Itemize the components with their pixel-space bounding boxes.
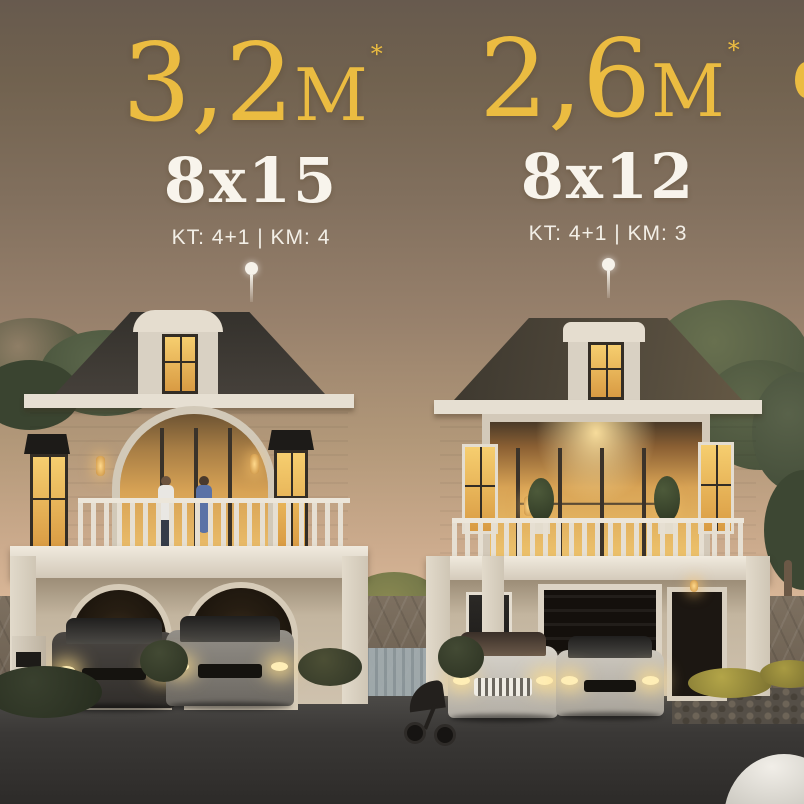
dormer-window: [588, 342, 624, 400]
awning-icon: [24, 434, 70, 454]
left-wing-window: [30, 454, 68, 552]
listing-right: 2,6M* 8x12 KT: 4+1 | KM: 3: [458, 26, 758, 298]
topiary-plant: [528, 478, 554, 522]
wall-lamp-icon: [250, 454, 259, 474]
asterisk: *: [728, 36, 740, 64]
white-crossover: [556, 636, 664, 716]
baby-stroller: [404, 682, 462, 744]
bush: [438, 636, 484, 678]
house-number-plaque: [16, 652, 41, 667]
awning-icon: [268, 430, 314, 450]
balcony-railing: [78, 498, 350, 553]
topiary-plant: [654, 476, 680, 522]
scene: 3,2M* 8x15 KT: 4+1 | KM: 4 2,6M* 8x12 KT…: [0, 0, 804, 804]
price-right: 2,6M*: [458, 26, 758, 134]
dormer-window: [162, 334, 198, 394]
dimensions-right: 8x12: [458, 146, 758, 208]
dimensions-left: 8x15: [96, 150, 406, 212]
specs-right: KT: 4+1 | KM: 3: [458, 222, 758, 246]
marker-pin-icon: [245, 262, 258, 275]
price-left: 3,2M*: [96, 30, 406, 138]
wall-lamp-icon: [96, 456, 105, 476]
left-house-dormer: [138, 318, 218, 394]
marker-pin-icon: [602, 258, 615, 271]
bush: [298, 648, 362, 686]
door-lamp-icon: [690, 580, 698, 592]
listing-left: 3,2M* 8x15 KT: 4+1 | KM: 4: [96, 30, 406, 302]
bush: [140, 640, 188, 682]
specs-left: KT: 4+1 | KM: 4: [96, 226, 406, 250]
asterisk: *: [371, 40, 383, 68]
right-house-dormer: [568, 330, 640, 400]
